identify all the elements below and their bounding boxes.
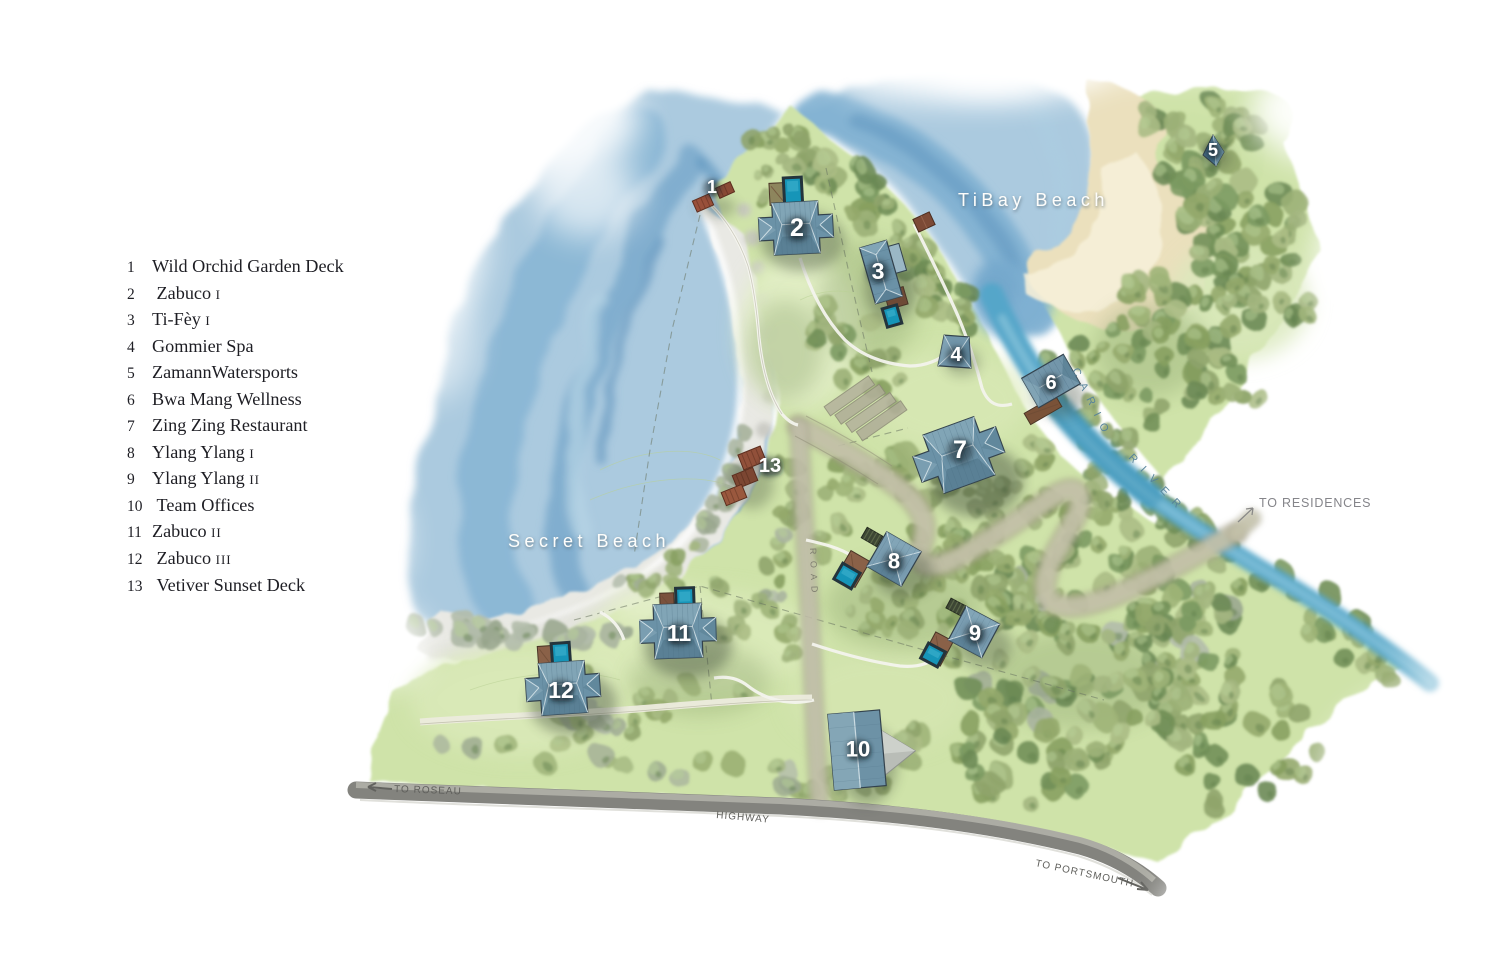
svg-text:1: 1 xyxy=(707,177,717,197)
svg-text:Secret Beach: Secret Beach xyxy=(508,531,670,551)
svg-text:6: 6 xyxy=(1045,372,1056,394)
svg-text:TiBay Beach: TiBay Beach xyxy=(958,190,1109,210)
svg-text:10: 10 xyxy=(846,737,870,762)
svg-text:11: 11 xyxy=(667,620,692,646)
svg-text:2: 2 xyxy=(790,214,804,242)
svg-text:12: 12 xyxy=(548,677,574,703)
svg-text:5: 5 xyxy=(1208,140,1218,160)
svg-text:9: 9 xyxy=(969,621,981,646)
svg-text:7: 7 xyxy=(953,436,967,464)
svg-text:3: 3 xyxy=(872,258,885,284)
svg-text:R O A D: R O A D xyxy=(808,548,820,595)
svg-text:4: 4 xyxy=(950,344,962,366)
svg-text:TO RESIDENCES: TO RESIDENCES xyxy=(1259,496,1371,510)
svg-text:8: 8 xyxy=(888,549,900,574)
svg-text:13: 13 xyxy=(759,455,781,477)
